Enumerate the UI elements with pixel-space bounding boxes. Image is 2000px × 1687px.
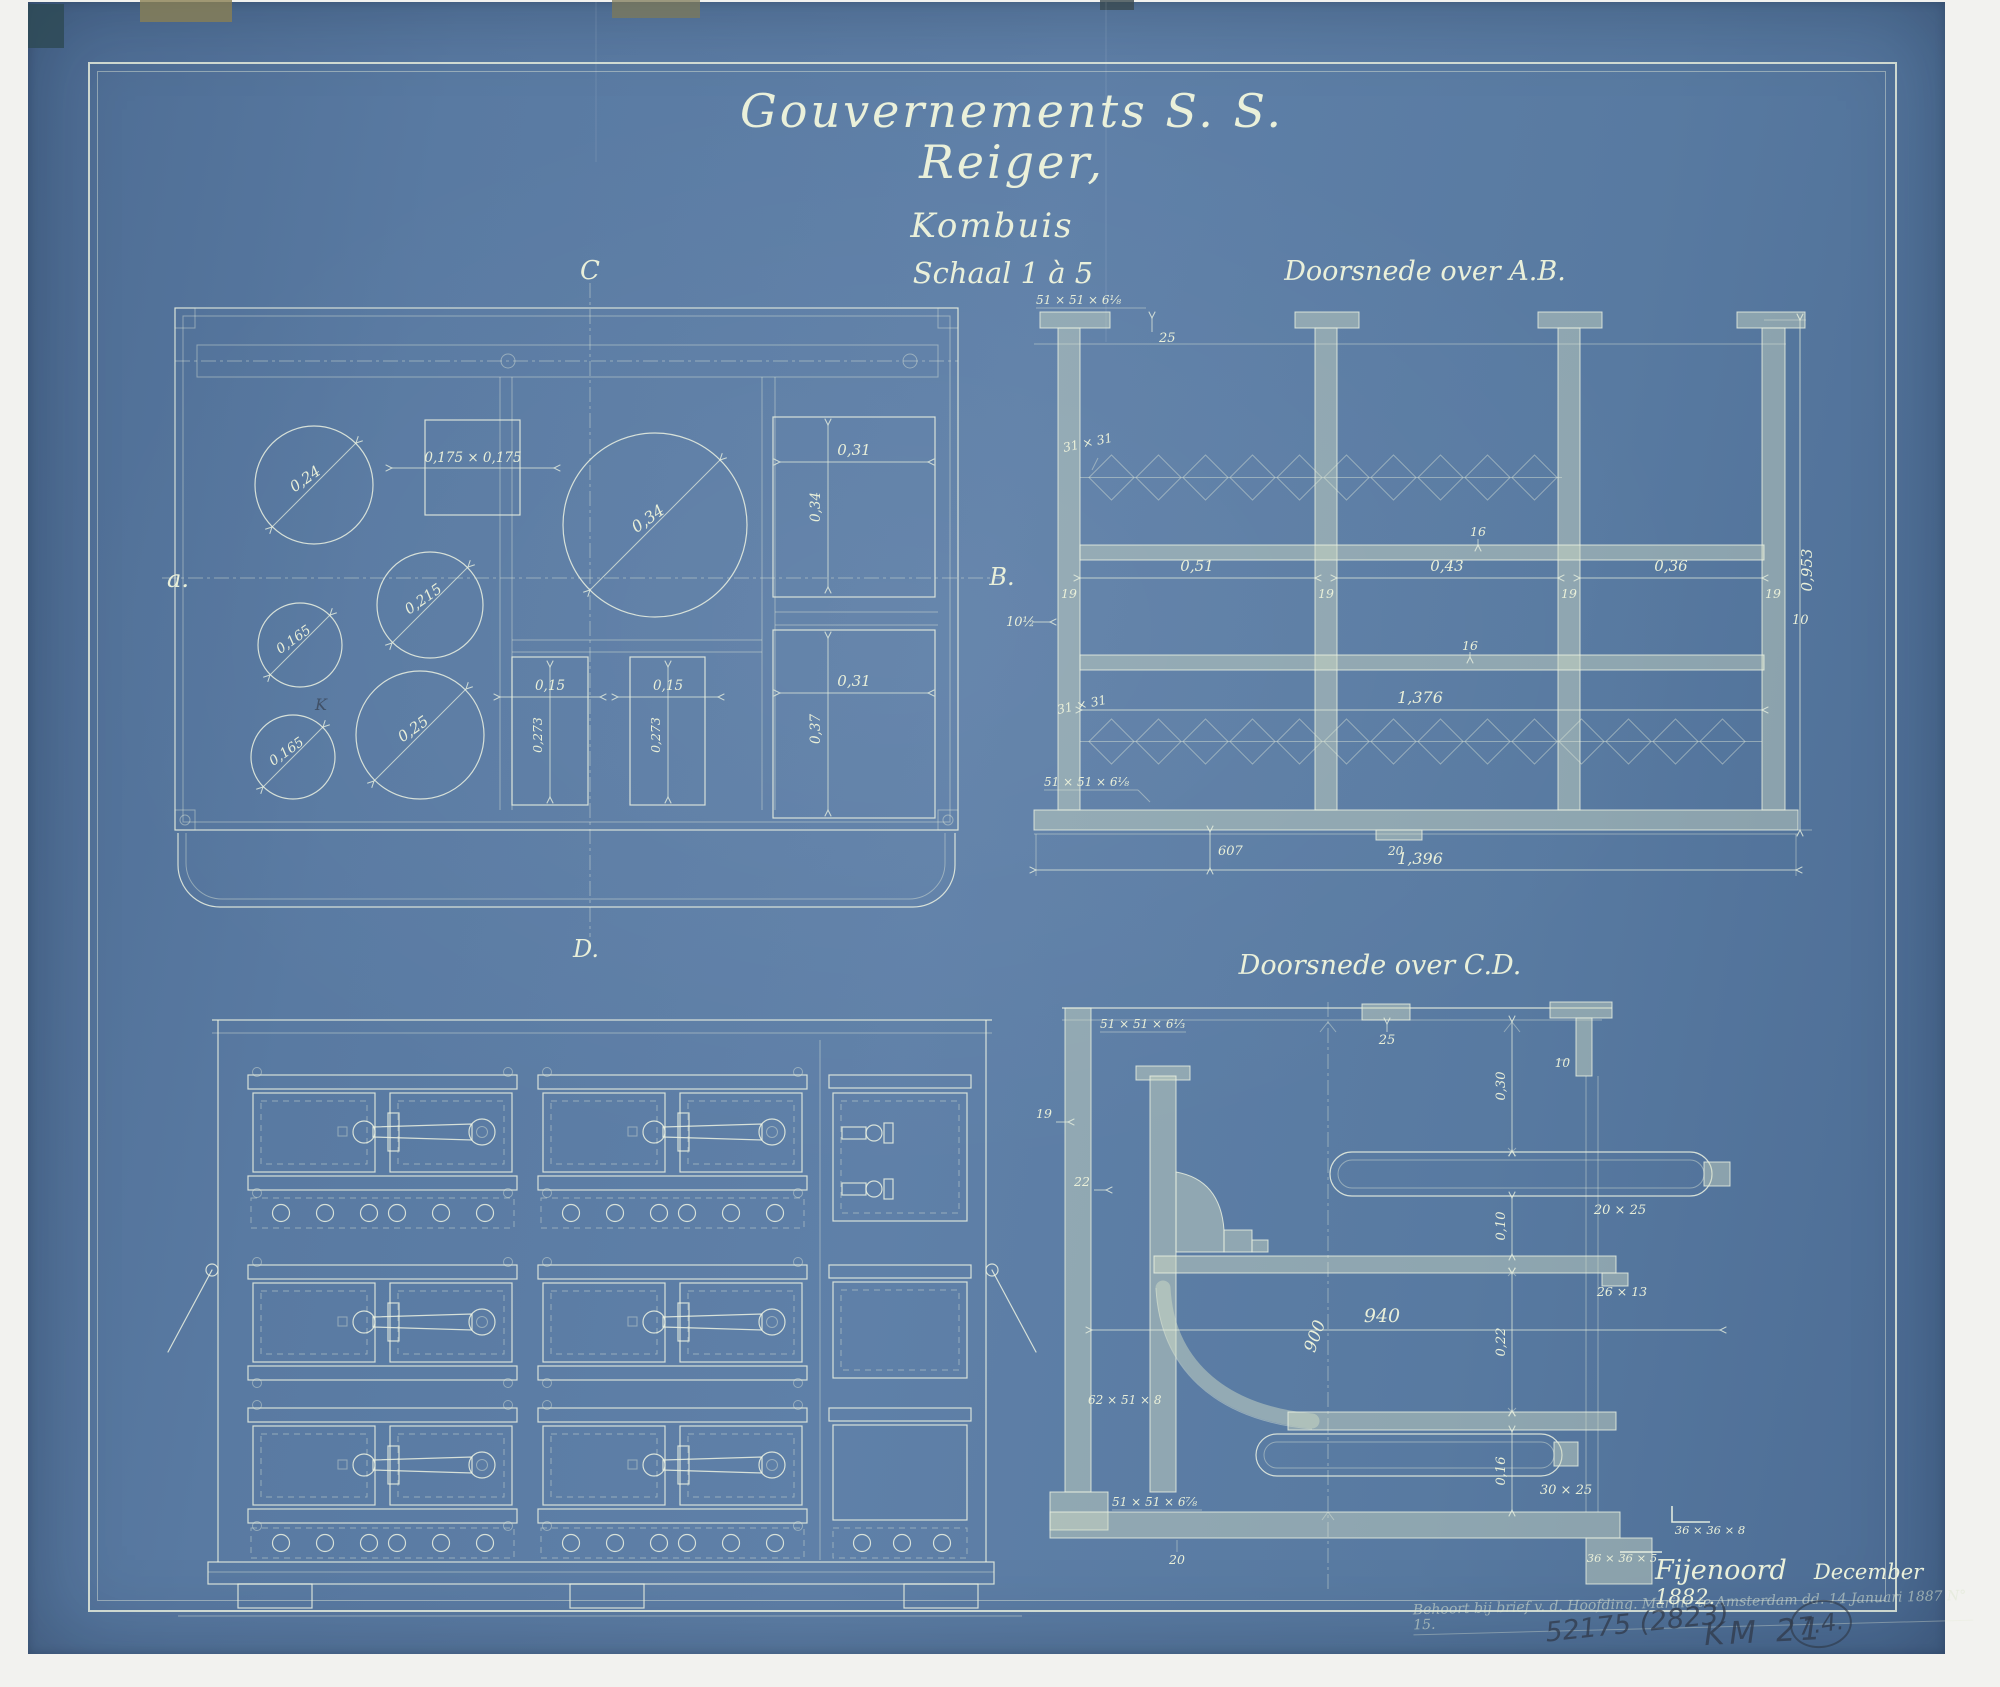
cd-angle-top-left: 51 × 51 × 6⅓ [1100, 1017, 1186, 1031]
ab-dim-bay-left: 0,51 [1180, 557, 1213, 575]
oven-doors-row-2 [248, 1258, 971, 1388]
pencil-mark-k: K [314, 695, 328, 714]
side-handles [168, 1264, 1036, 1352]
cd-angle-mid-left: 62 × 51 × 8 [1088, 1393, 1162, 1407]
ab-dim-post-3: 19 [1561, 586, 1577, 601]
ab-dimensions: 51 × 51 × 6⅛ 25 31 × 31 0,51 0,43 0,36 1… [1006, 293, 1816, 876]
dim-label-oven-top-w: 0,31 [837, 441, 870, 459]
tape-top-left [140, 0, 232, 22]
cd-dim-top-right: 10 [1555, 1056, 1571, 1070]
cd-dim-h3: 0,22 [1494, 1328, 1509, 1357]
plan-section-markers: C a. B. D. [167, 256, 1015, 963]
ab-dim-post-4: 19 [1765, 586, 1781, 601]
plan-burner-circles: 0,24 0,175 × 0,175 0,34 0,215 0,165 0,16… [251, 420, 747, 799]
marker-d: D. [572, 935, 599, 963]
ab-dim-plinth: 607 [1218, 844, 1244, 859]
ab-angle-bottom-left: 51 × 51 × 6⅛ [1044, 775, 1130, 789]
ab-dim-overall-width: 1,396 [1397, 849, 1443, 868]
dim-label-circle-top-left: 0,24 [286, 462, 324, 496]
cd-tube-upper: 20 × 25 [1593, 1203, 1646, 1218]
ab-dim-bay-mid: 0,43 [1430, 557, 1463, 575]
cd-dim-width-outer: 940 [1364, 1305, 1400, 1327]
signature-place: Fijenoord [1655, 1555, 1787, 1586]
section-ab-view: 51 × 51 × 6⅛ 25 31 × 31 0,51 0,43 0,36 1… [1000, 240, 1860, 890]
marker-c: C [580, 256, 600, 286]
cd-dim-left-upper: 19 [1036, 1106, 1052, 1121]
blueprint-sheet: Gouvernements S. S. Reiger, Kombuis Scha… [28, 2, 1945, 1654]
cd-angle-right-lower: 36 × 36 × 5 [1587, 1551, 1657, 1565]
cd-dim-h2: 0,10 [1494, 1212, 1509, 1241]
cd-angle-right-upper: 36 × 36 × 8 [1675, 1523, 1745, 1537]
dim-label-square-top: 0,175 × 0,175 [424, 450, 521, 466]
oven-doors-row-1 [248, 1068, 971, 1229]
cd-dim-base: 20 [1168, 1552, 1185, 1567]
cd-dim-width-inner: 900 [1300, 1317, 1330, 1355]
marker-a: a. [167, 565, 189, 593]
dim-label-circle-small-lower: 0,165 [266, 734, 307, 769]
plan-outline [175, 308, 958, 907]
section-cd-view: 51 × 51 × 6⅓ 25 10 19 22 0,30 0,10 0,22 … [1020, 940, 1840, 1630]
ab-dim-overall-height: 0,953 [1798, 549, 1816, 592]
dim-label-slot-right-h: 0,273 [648, 717, 663, 753]
cd-bar-mid: 26 × 13 [1596, 1284, 1647, 1299]
dim-label-slot-left-h: 0,273 [530, 717, 545, 753]
ab-dim-post-1: 19 [1061, 586, 1077, 601]
plan-section-lines [162, 283, 1002, 937]
ab-dim-inner-width: 1,376 [1397, 688, 1443, 707]
plan-view: 0,24 0,175 × 0,175 0,34 0,215 0,165 0,16… [140, 235, 1020, 975]
cd-dim-h1: 0,30 [1494, 1072, 1509, 1101]
oven-doors-row-3 [248, 1401, 971, 1559]
dim-label-circle-large: 0,34 [628, 500, 668, 536]
dim-label-circle-bottom: 0,25 [394, 712, 432, 746]
ab-grate-rows [1080, 455, 1762, 764]
tape-top-center [612, 0, 700, 18]
dim-label-oven-bottom-h: 0,37 [808, 714, 824, 744]
ab-dim-top-gap: 25 [1158, 331, 1176, 346]
corner-tape-mark [28, 4, 64, 48]
ab-dim-rail-upper: 16 [1470, 524, 1486, 539]
cd-dimensions: 51 × 51 × 6⅓ 25 10 19 22 0,30 0,10 0,22 … [1036, 1017, 1745, 1567]
scanned-blueprint-page: { "header": { "title": "Gouvernements S.… [0, 0, 2000, 1687]
ab-dim-bay-right: 0,36 [1654, 557, 1688, 575]
drawing-title: Gouvernements S. S. Reiger, [662, 86, 1362, 187]
cd-tube-lower: 30 × 25 [1540, 1483, 1592, 1498]
dim-label-circle-mid: 0,215 [402, 581, 445, 618]
plan-ovens: 0,31 0,34 0,31 0,37 [773, 417, 935, 818]
ab-angle-top-left: 51 × 51 × 6⅛ [1036, 293, 1122, 307]
dim-label-oven-bottom-w: 0,31 [837, 672, 870, 690]
cd-dim-h4: 0,16 [1494, 1457, 1509, 1486]
ab-frame [1034, 312, 1805, 840]
ab-dim-side-left: 10½ [1006, 615, 1035, 630]
plan-slots: 0,15 0,273 0,15 0,273 [500, 657, 718, 805]
dim-label-oven-top-h: 0,34 [808, 492, 824, 522]
cd-dim-left-inner: 22 [1073, 1174, 1090, 1189]
front-elevation-view [150, 980, 1050, 1650]
ab-dim-post-2: 19 [1318, 586, 1334, 601]
cd-dim-top-gap: 25 [1378, 1033, 1396, 1048]
stove-frame [178, 1020, 1022, 1616]
cd-angle-bottom-left: 51 × 51 × 6⅞ [1112, 1495, 1198, 1509]
ab-dim-rail-lower: 16 [1462, 638, 1478, 653]
dim-label-circle-small-upper: 0,165 [273, 622, 314, 657]
